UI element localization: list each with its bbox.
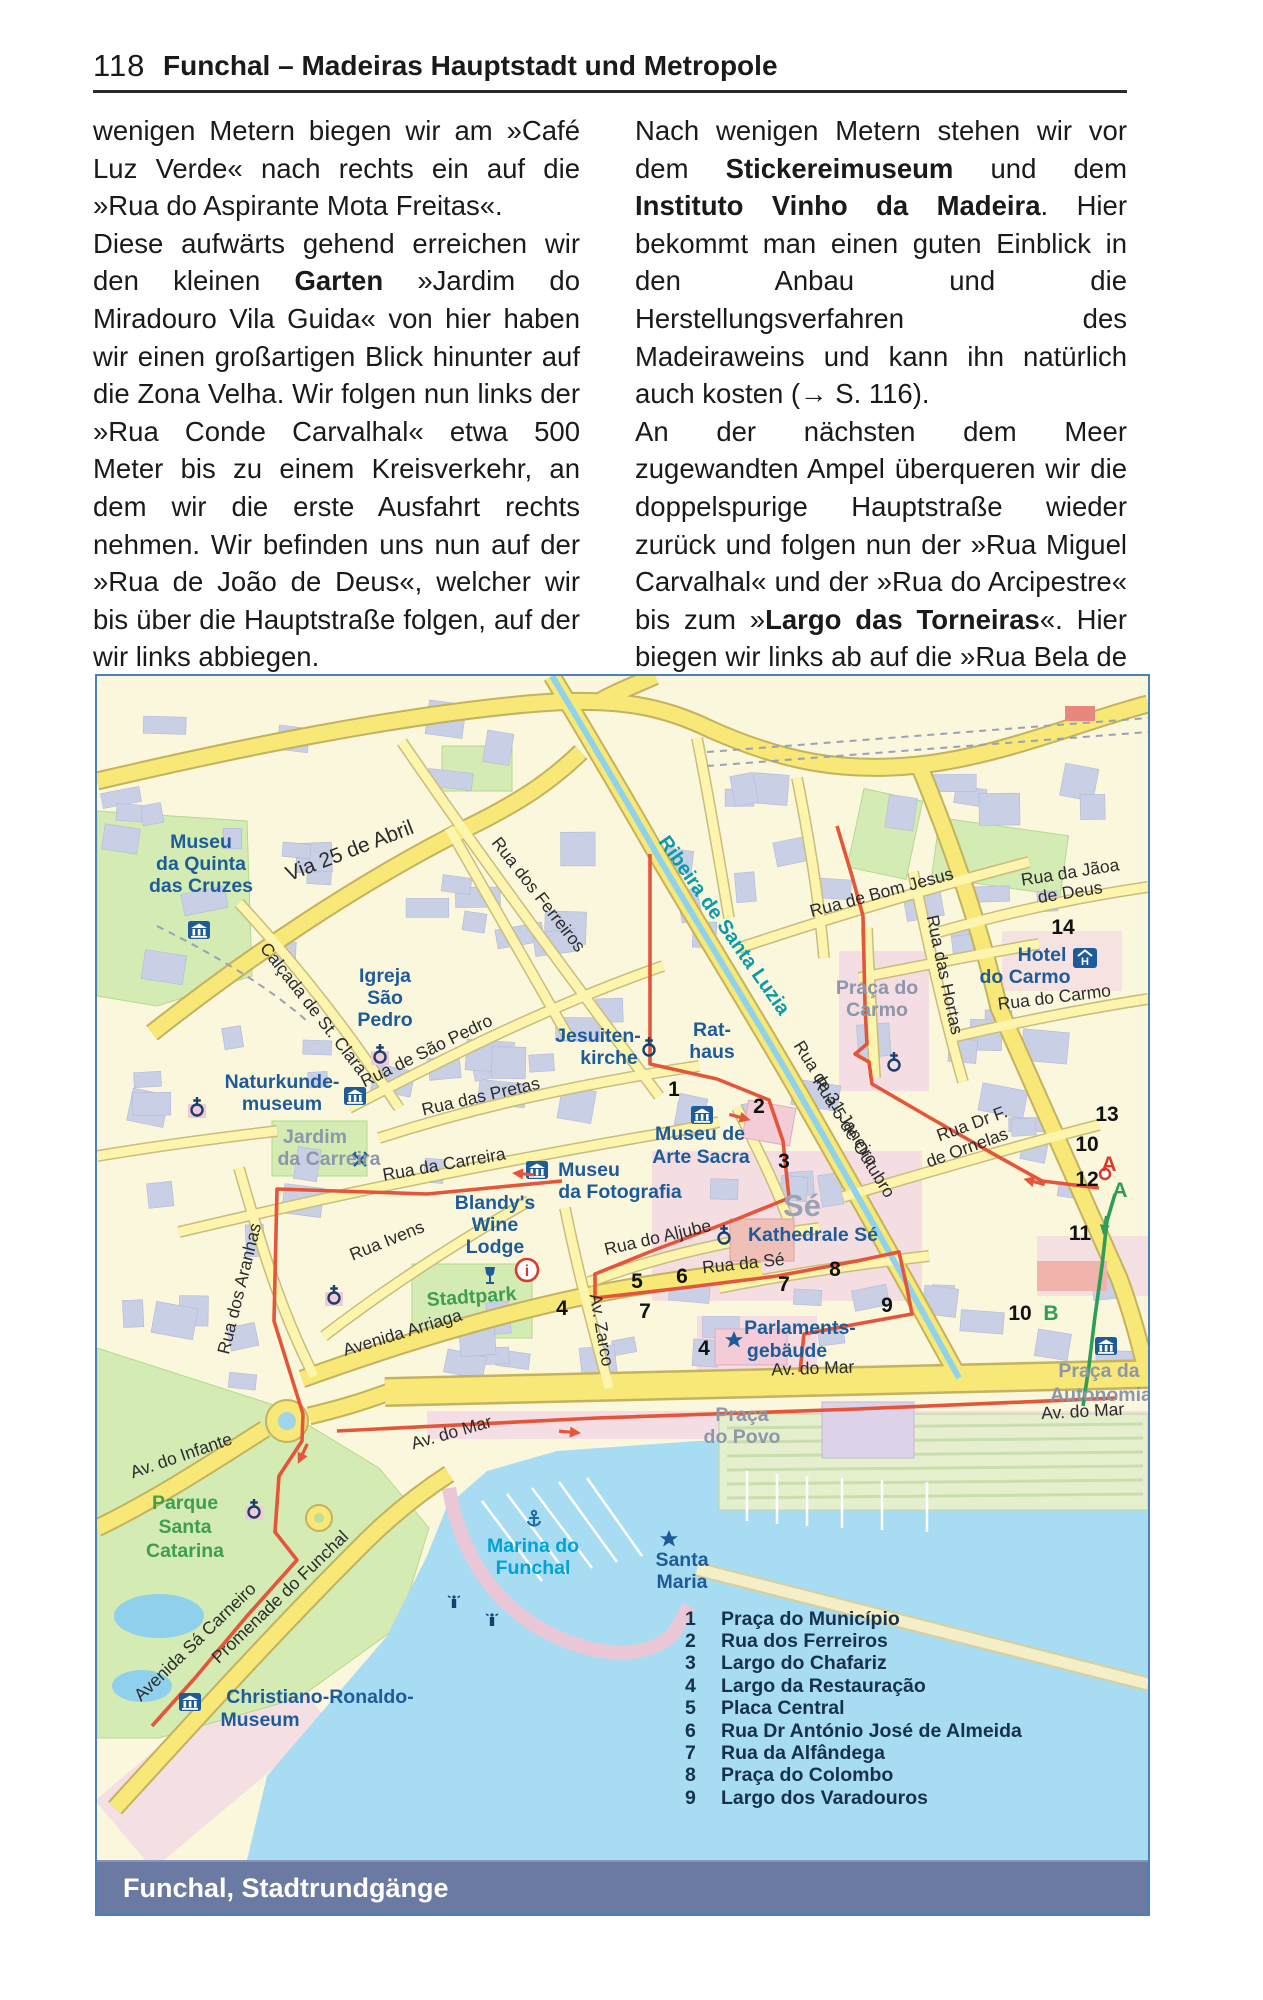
map-label: Parque — [152, 1492, 218, 1514]
map-label: 12 — [1075, 1168, 1098, 1191]
svg-text:H: H — [1081, 956, 1089, 968]
map-label: gebäude — [747, 1340, 827, 1362]
map-label: Rat- — [693, 1019, 731, 1041]
map-label: Jesuiten- — [555, 1025, 641, 1047]
map-label: Funchal — [496, 1557, 571, 1579]
map-label: Catarina — [146, 1540, 224, 1562]
legend-item: 3Largo do Chafariz — [685, 1653, 1105, 1675]
map-label: Museu — [170, 831, 232, 853]
map-label: 4 — [698, 1337, 710, 1360]
map-label: Naturkunde- — [225, 1071, 340, 1093]
map-label: Lodge — [466, 1236, 525, 1258]
map-label: 11 — [1069, 1222, 1092, 1245]
map-label: 7 — [639, 1300, 651, 1323]
map-label: Praça da — [1058, 1360, 1139, 1382]
map-label: 7 — [778, 1273, 790, 1296]
header-rule — [93, 90, 1127, 93]
museum-icon — [691, 1106, 713, 1124]
paragraph: Nach wenigen Metern stehen wir vor dem S… — [635, 112, 1127, 413]
map-label: Sé — [783, 1188, 821, 1223]
guidebook-page: 118 Funchal – Madeiras Hauptstadt und Me… — [0, 0, 1263, 2000]
map-label: Pedro — [357, 1009, 412, 1031]
map-label: São — [367, 987, 403, 1009]
map-label: 10 — [1008, 1302, 1031, 1325]
map-label: Jardim — [283, 1126, 347, 1148]
map-label: 13 — [1095, 1103, 1118, 1126]
legend-item: 2Rua dos Ferreiros — [685, 1630, 1105, 1652]
article-left-column: wenigen Metern biegen wir am »Café Luz V… — [93, 112, 580, 676]
map-label: 4 — [556, 1297, 568, 1320]
map-label: 3 — [778, 1150, 790, 1173]
legend-item: 7Rua da Alfândega — [685, 1742, 1105, 1764]
map-label: Praça — [715, 1404, 768, 1426]
legend-item: 4Largo da Restauração — [685, 1675, 1105, 1697]
paragraph: Diese aufwärts gehend erreichen wir den … — [93, 225, 580, 676]
map-label: das Cruzes — [149, 875, 253, 897]
map-label: Carmo — [846, 999, 908, 1021]
museum-icon — [526, 1161, 548, 1179]
legend-item: 8Praça do Colombo — [685, 1765, 1105, 1787]
page-title: Funchal – Madeiras Hauptstadt und Metrop… — [163, 50, 778, 82]
city-map[interactable]: Hi Via 25 de AbrilCalçada de St. ClaraRu… — [95, 674, 1150, 1916]
paragraph: wenigen Metern biegen wir am »Café Luz V… — [93, 112, 580, 225]
museum-icon — [1095, 1337, 1117, 1355]
map-label: do Povo — [704, 1426, 781, 1448]
map-label: Igreja — [359, 965, 411, 987]
legend-item: 5Placa Central — [685, 1698, 1105, 1720]
map-label: haus — [689, 1041, 735, 1063]
museum-icon — [344, 1087, 366, 1105]
map-label: Autonomia — [1050, 1384, 1148, 1406]
map-caption-bar: Funchal, Stadtrundgänge — [97, 1860, 1148, 1914]
map-label: Museum — [220, 1709, 299, 1731]
map-label: Santa — [655, 1549, 708, 1571]
article-right-column: Nach wenigen Metern stehen wir vor dem S… — [635, 112, 1127, 714]
map-label: 6 — [676, 1265, 688, 1288]
map-label: Parlaments- — [744, 1317, 856, 1339]
info-icon: i — [516, 1259, 538, 1281]
map-label: museum — [242, 1093, 322, 1115]
map-label: 2 — [753, 1095, 765, 1118]
museum-icon — [179, 1693, 201, 1711]
page-number: 118 — [93, 48, 145, 84]
map-label: kirche — [580, 1047, 638, 1069]
map-label: 1 — [668, 1078, 680, 1101]
paragraph: An der nächsten dem Meer zugewandten Amp… — [635, 413, 1127, 714]
legend-item: 6Rua Dr António José de Almeida — [685, 1720, 1105, 1742]
map-label: da Fotografia — [558, 1181, 682, 1203]
map-legend: 1Praça do Município2Rua dos Ferreiros3La… — [685, 1608, 1105, 1810]
svg-text:i: i — [525, 1263, 529, 1280]
map-label: Santa — [158, 1516, 211, 1538]
legend-item: 1Praça do Município — [685, 1608, 1105, 1630]
map-label: Kathedrale Sé — [748, 1224, 878, 1246]
map-label: Wine — [472, 1214, 519, 1236]
map-label: Museu — [558, 1159, 620, 1181]
hotel-icon: H — [1073, 948, 1097, 968]
map-label: A — [1101, 1153, 1116, 1176]
map-label: 8 — [829, 1258, 841, 1281]
map-label: da Carreira — [278, 1148, 381, 1170]
map-label: 9 — [881, 1294, 893, 1317]
museum-icon — [188, 921, 210, 939]
map-label: Blandy's — [455, 1192, 536, 1214]
map-label: A — [1112, 1179, 1127, 1202]
map-label: Maria — [657, 1571, 708, 1593]
map-label: Arte Sacra — [652, 1146, 750, 1168]
map-label: do Carmo — [979, 966, 1070, 988]
map-label: Museu de — [655, 1123, 745, 1145]
map-label: B — [1043, 1302, 1058, 1325]
map-label: 5 — [631, 1270, 643, 1293]
map-label: Hotel — [1018, 944, 1067, 966]
map-label: Christiano-Ronaldo- — [226, 1686, 413, 1708]
map-caption: Funchal, Stadtrundgänge — [97, 1873, 449, 1904]
legend-item: 9Largo dos Varadouros — [685, 1787, 1105, 1809]
map-label: Praça do — [836, 977, 918, 999]
map-label: da Quinta — [156, 853, 246, 875]
map-label: 14 — [1051, 916, 1075, 939]
map-label: Marina do — [487, 1535, 579, 1557]
map-label: 10 — [1075, 1133, 1098, 1156]
